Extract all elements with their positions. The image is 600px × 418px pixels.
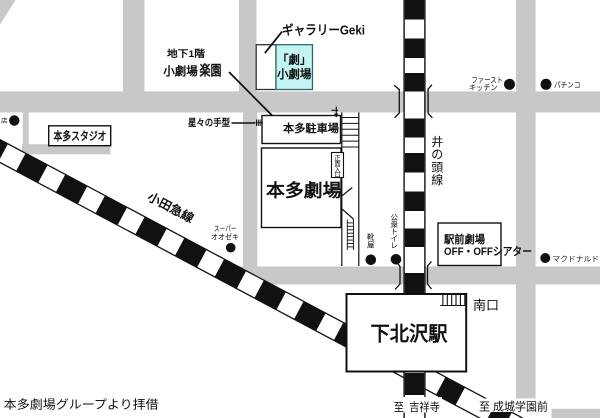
svg-text:屋: 屋: [367, 241, 375, 250]
svg-text:レ: レ: [390, 241, 398, 250]
svg-text:キッチン: キッチン: [469, 83, 498, 92]
svg-text:小劇場: 小劇場: [162, 64, 198, 78]
svg-text:楽園: 楽園: [199, 63, 222, 79]
svg-text:本多スタジオ: 本多スタジオ: [54, 129, 107, 143]
svg-text:線: 線: [431, 172, 443, 187]
svg-text:「劇」: 「劇」: [277, 53, 312, 67]
svg-text:店: 店: [1, 116, 8, 125]
svg-text:下北沢駅: 下北沢駅: [371, 323, 448, 346]
svg-text:至 吉祥寺: 至 吉祥寺: [394, 400, 440, 414]
svg-text:本多劇場グループより拝借: 本多劇場グループより拝借: [4, 397, 159, 411]
svg-text:パチンコ: パチンコ: [554, 80, 581, 89]
svg-text:ギャラリーGeki: ギャラリーGeki: [282, 23, 365, 38]
svg-text:星々の手型: 星々の手型: [188, 117, 230, 129]
svg-text:本多劇場: 本多劇場: [266, 181, 342, 201]
svg-text:地下1階: 地下1階: [167, 48, 206, 60]
svg-text:オオゼキ: オオゼキ: [211, 231, 239, 241]
svg-text:マクドナルド: マクドナルド: [553, 254, 600, 263]
svg-text:駅前劇場: 駅前劇場: [443, 232, 485, 246]
svg-text:至 成城学園前: 至 成城学園前: [479, 400, 548, 414]
svg-text:小劇場: 小劇場: [276, 67, 312, 81]
svg-text:口: 口: [334, 171, 340, 179]
svg-text:本多駐車場: 本多駐車場: [283, 121, 339, 135]
svg-text:OFF・OFFシアター: OFF・OFFシアター: [444, 245, 532, 258]
svg-text:南口: 南口: [473, 298, 499, 313]
